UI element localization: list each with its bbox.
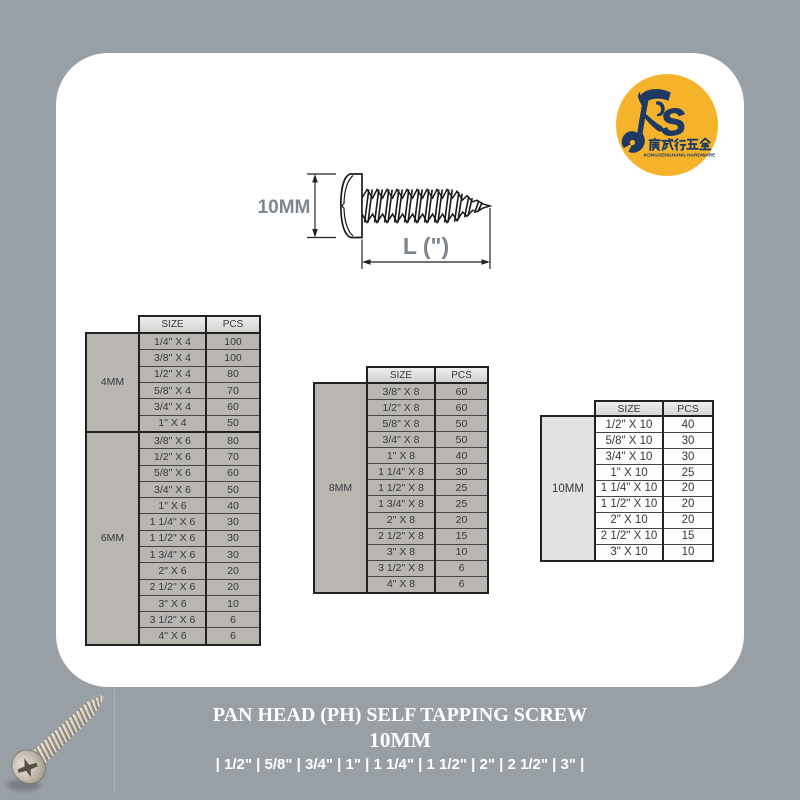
svg-text:KONGSENGHANG HARDWARE: KONGSENGHANG HARDWARE xyxy=(644,153,716,159)
svg-text:10MM: 10MM xyxy=(258,197,311,218)
svg-text:L ("): L (") xyxy=(403,233,449,259)
svg-text:S: S xyxy=(659,101,688,144)
